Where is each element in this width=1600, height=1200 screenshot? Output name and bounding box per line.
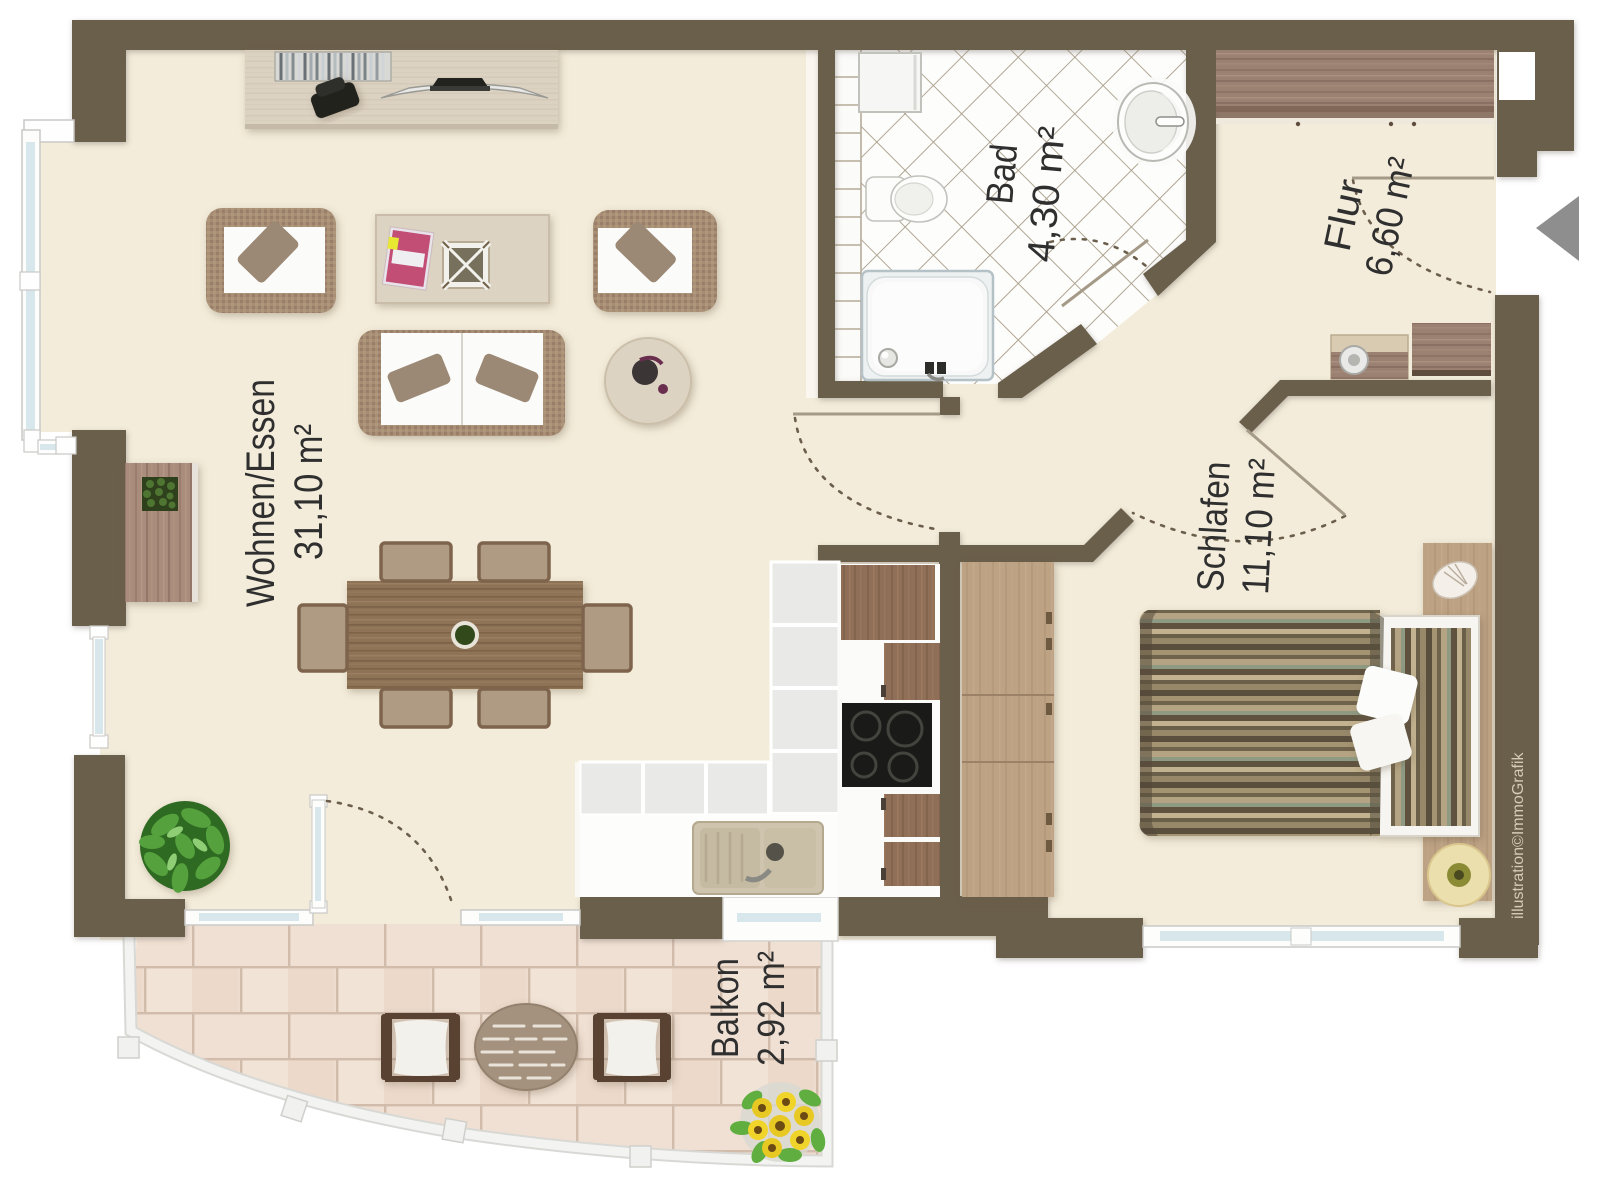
svg-text:illustration©ImmoGrafik: illustration©ImmoGrafik: [1510, 752, 1527, 919]
svg-text:11,10 m²: 11,10 m²: [1235, 457, 1284, 595]
svg-text:Balkon: Balkon: [705, 958, 747, 1058]
svg-text:2,92 m²: 2,92 m²: [751, 951, 793, 1066]
svg-text:Wohnen/Essen: Wohnen/Essen: [239, 379, 283, 607]
svg-text:Bad: Bad: [979, 142, 1026, 205]
svg-text:31,10 m²: 31,10 m²: [287, 424, 331, 560]
svg-text:Schlafen: Schlafen: [1190, 460, 1239, 592]
